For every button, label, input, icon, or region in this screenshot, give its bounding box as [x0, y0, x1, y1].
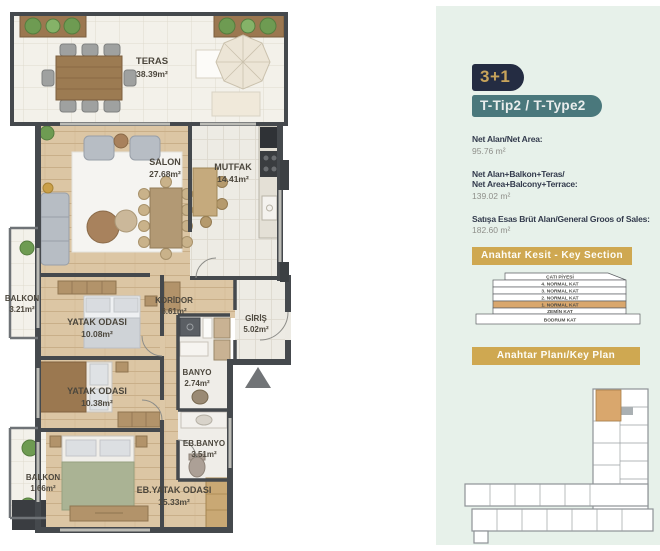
svg-text:ZEMİN KAT: ZEMİN KAT [547, 308, 573, 315]
room-area-yatak2: 10.38m² [81, 398, 113, 408]
room-label-balkon-ust: BALKON [5, 294, 39, 303]
svg-text:4. NORMAL KAT: 4. NORMAL KAT [541, 282, 578, 288]
wall-pier-2 [280, 262, 289, 282]
room-fills [10, 14, 288, 530]
side-table [114, 134, 128, 148]
key-plan-diagram [460, 385, 660, 551]
room-area-koridor: 6.61m² [161, 307, 187, 316]
stat-net-area: Net Alan/Net Area: 95.76 m² [472, 134, 658, 157]
room-area-mutfak: 14.41m² [217, 174, 249, 184]
kitchen-sink [262, 196, 277, 220]
building-bar-2 [472, 509, 653, 531]
plant [40, 126, 54, 140]
room-area-salon: 27.68m² [149, 169, 181, 179]
room-area-yatak1: 10.08m² [81, 329, 113, 339]
balcony-plant-1 [20, 241, 34, 255]
stat-gross-sales: Satışa Esas Brüt Alan/General Groos of S… [472, 214, 658, 237]
building-bar-1 [465, 484, 648, 506]
unit-type-badge: 3+1 [472, 64, 524, 91]
building-stub [474, 531, 488, 543]
room-area-balkon-alt: 1.66m² [30, 484, 56, 493]
room-area-ebbanyo: 3.51m² [191, 450, 217, 459]
key-section-banner: Anahtar Kesit - Key Section [472, 247, 632, 265]
room-label-ebbanyo: EB.BANYO [183, 439, 225, 448]
room-area-giris: 5.02m² [243, 325, 269, 334]
master-bed [62, 436, 134, 510]
room-label-balkon-alt: BALKON [26, 473, 60, 482]
svg-text:1. NORMAL KAT: 1. NORMAL KAT [541, 303, 578, 309]
stat-net-plus-balcony: Net Alan+Balkon+Teras/ Net Area+Balcony+… [472, 169, 658, 202]
eb-toilet [189, 457, 205, 477]
room-label-yatak2: YATAK ODASI [67, 386, 127, 396]
room-label-teras: TERAS [136, 56, 168, 67]
room-area-balkon-ust: 3.21m² [9, 305, 35, 314]
svg-text:3. NORMAL KAT: 3. NORMAL KAT [541, 289, 578, 295]
room-label-ebyatak: EB.YATAK ODASI [137, 485, 212, 495]
entrance-arrow-icon [245, 367, 271, 388]
coffee-table-1 [87, 211, 119, 243]
dresser-2 [118, 412, 160, 427]
room-label-mutfak: MUTFAK [214, 162, 252, 172]
room-label-banyo: BANYO [183, 368, 212, 377]
room-label-salon: SALON [149, 157, 181, 167]
key-plan-banner: Anahtar Planı/Key Plan [472, 347, 640, 365]
room-label-koridor: KORİDOR [155, 296, 193, 305]
info-panel: 3+1 T-Tip2 / T-Type2 Net Alan/Net Area: … [436, 6, 660, 545]
area-stats: Net Alan/Net Area: 95.76 m² Net Alan+Bal… [472, 134, 658, 248]
room-label-giris: GİRİŞ [245, 314, 267, 323]
coffee-table-2 [115, 210, 137, 232]
svg-text:2. NORMAL KAT: 2. NORMAL KAT [541, 296, 578, 302]
room-label-yatak1: YATAK ODASI [67, 317, 127, 327]
brochure-page: TERAS 38.39m² SALON 27.68m² MUTFAK 14.41… [0, 0, 660, 545]
unit-variant-badge: T-Tip2 / T-Type2 [472, 95, 602, 117]
svg-text:ÇATI PİYESİ: ÇATI PİYESİ [546, 274, 574, 281]
sofa [41, 193, 69, 265]
highlighted-unit [596, 390, 621, 421]
bath-sink [180, 342, 208, 356]
room-area-ebyatak: 15.33m² [158, 497, 190, 507]
room-area-banyo: 2.74m² [184, 379, 210, 388]
floor-lamp [43, 183, 53, 193]
wall-pier-1 [280, 160, 289, 190]
nightstand-2 [116, 362, 128, 372]
shower [180, 318, 200, 336]
lounge-sofa [212, 92, 260, 116]
key-section-diagram: ÇATI PİYESİ 4. NORMAL KAT 3. NORMAL KAT … [470, 271, 650, 329]
floor-plan: TERAS 38.39m² SALON 27.68m² MUTFAK 14.41… [0, 0, 436, 545]
elevator-core [621, 407, 633, 415]
armchair-1 [84, 136, 114, 160]
room-area-teras: 38.39m² [136, 69, 168, 79]
svg-text:BODRUM KAT: BODRUM KAT [544, 317, 576, 323]
toilet [192, 390, 208, 404]
